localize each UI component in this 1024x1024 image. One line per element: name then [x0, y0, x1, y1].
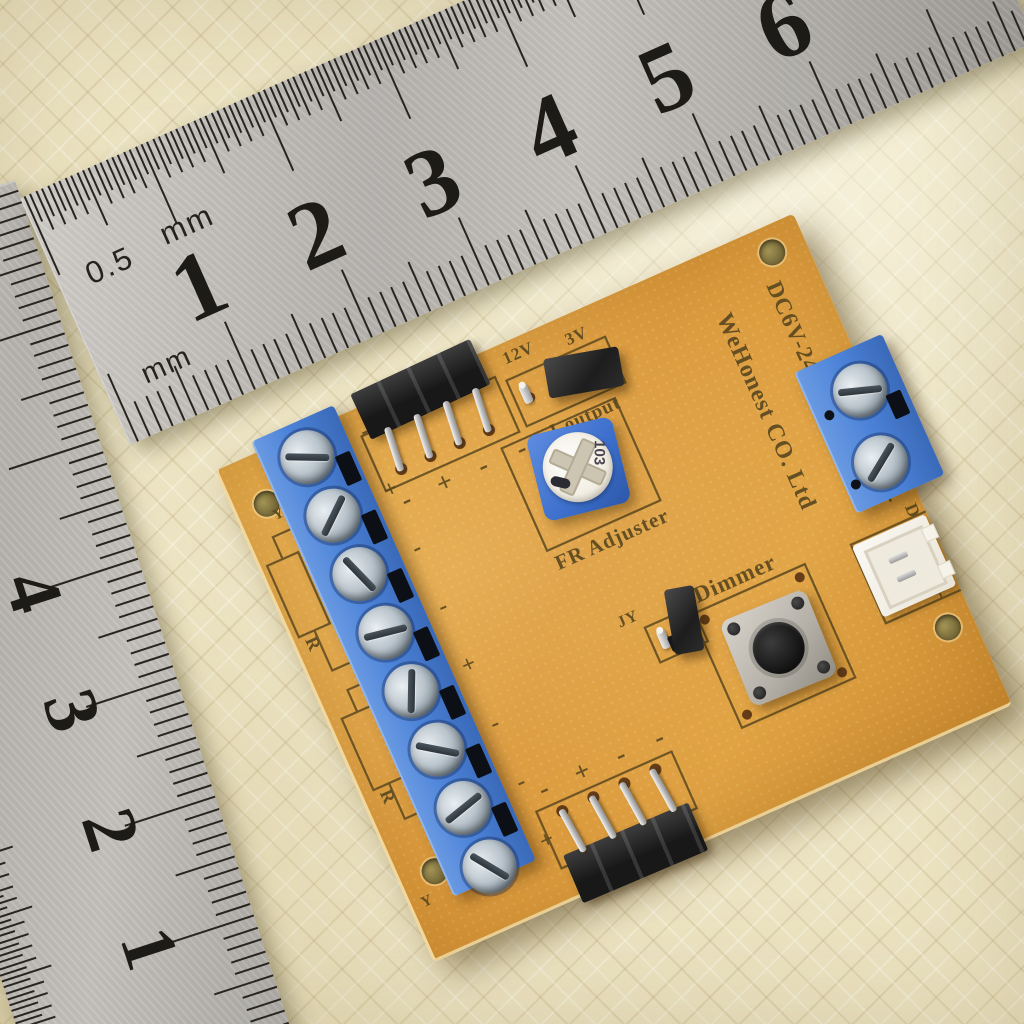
- screw-slot: [444, 791, 483, 824]
- ruler-tick: [613, 188, 630, 224]
- ruler-tick: [0, 213, 26, 226]
- ruler-tick: [88, 167, 102, 195]
- terminal-screw: [428, 772, 499, 843]
- ruler-tick: [310, 68, 324, 96]
- screw-slot: [363, 624, 407, 641]
- ruler-tick: [228, 105, 242, 133]
- terminal-pin-hole: [823, 409, 836, 422]
- ruler-tick: [61, 427, 96, 440]
- ruler-tick: [134, 653, 169, 666]
- ruler-tick: [127, 629, 162, 642]
- ruler-tick: [188, 819, 223, 832]
- ruler-tick: [601, 193, 618, 229]
- ruler-tick: [138, 665, 173, 678]
- top-ruler-number: 3: [388, 120, 477, 241]
- ruler-tick: [391, 287, 408, 323]
- ruler-tick: [150, 700, 185, 713]
- ruler-tick: [1010, 11, 1024, 47]
- ruler-tick: [449, 261, 466, 297]
- ruler-tick: [298, 74, 312, 102]
- ruler-tick: [0, 189, 18, 202]
- ruler-tick: [72, 463, 107, 476]
- ruler-tick: [917, 52, 934, 88]
- ruler-tick: [274, 339, 291, 375]
- ruler-tick: [193, 120, 207, 148]
- left-ruler-number: 4: [0, 560, 80, 623]
- ruler-tick: [524, 209, 548, 259]
- terminal-screw: [350, 597, 421, 668]
- ruler-tick: [858, 78, 875, 114]
- ruler-tick: [119, 605, 154, 618]
- ruler-tick: [177, 784, 212, 797]
- ruler-tick: [875, 53, 899, 103]
- ruler-tick: [199, 118, 225, 174]
- ruler-tick: [41, 188, 55, 216]
- ruler-tick: [608, 0, 645, 15]
- ruler-tick: [165, 748, 200, 761]
- ruler-tick: [800, 104, 817, 140]
- terminal-screw: [376, 655, 447, 726]
- ruler-tick: [847, 84, 864, 120]
- ruler-tick: [439, 11, 453, 39]
- top-ruler-lower-unit: mm: [136, 340, 197, 391]
- ruler-tick: [683, 156, 700, 192]
- ruler-tick: [57, 415, 92, 428]
- terminal-screw: [402, 714, 473, 785]
- ruler-tick: [519, 229, 536, 265]
- ruler-tick: [146, 141, 160, 169]
- ruler-tick: [145, 396, 162, 432]
- ruler-tick: [458, 217, 490, 285]
- ruler-tick: [0, 225, 30, 238]
- ruler-tick: [543, 219, 560, 255]
- ruler-tick: [975, 26, 992, 62]
- switch-corner-pin: [815, 659, 832, 676]
- ruler-tick: [692, 113, 724, 181]
- ruler-tick: [379, 292, 396, 328]
- top-ruler-number: 2: [271, 172, 360, 293]
- ruler-tick: [450, 6, 464, 34]
- ruler-tick: [208, 879, 243, 892]
- ruler-tick: [660, 167, 677, 203]
- ruler-tick: [99, 546, 134, 559]
- ruler-tick: [0, 237, 34, 250]
- ruler-tick: [231, 950, 266, 963]
- screw-slot: [321, 494, 347, 537]
- terminal-screw: [298, 480, 369, 551]
- ruler-tick: [812, 99, 829, 135]
- ruler-tick: [322, 63, 336, 91]
- ruler-tick: [34, 344, 69, 357]
- ruler-tick: [242, 986, 277, 999]
- ruler-tick: [380, 37, 394, 65]
- switch-corner-pin: [789, 595, 806, 612]
- ruler-tick: [215, 365, 232, 401]
- ruler-tick: [718, 141, 735, 177]
- ruler-tick: [135, 147, 149, 175]
- ruler-tick: [173, 772, 208, 785]
- ruler-tick: [437, 266, 454, 302]
- ruler-tick: [344, 307, 361, 343]
- ruler-tick: [49, 391, 84, 404]
- ruler-tick: [316, 66, 342, 122]
- ruler-tick: [758, 105, 782, 155]
- ruler-tick: [788, 110, 805, 146]
- ruler-tick: [157, 724, 192, 737]
- ruler-tick: [169, 760, 204, 773]
- screw-slot: [867, 442, 896, 483]
- ruler-tick: [38, 356, 73, 369]
- ruler-tick: [29, 193, 43, 221]
- ruler-tick: [227, 938, 262, 951]
- ruler-tick: [30, 332, 65, 345]
- ruler-tick: [170, 131, 184, 159]
- ruler-tick: [575, 165, 607, 233]
- screw-slot: [342, 556, 378, 593]
- screw-slot: [408, 669, 416, 713]
- ruler-tick: [309, 323, 326, 359]
- ruler-tick: [53, 403, 88, 416]
- ruler-tick: [158, 136, 172, 164]
- ruler-tick: [154, 712, 189, 725]
- ruler-tick: [566, 208, 583, 244]
- ruler-tick: [928, 47, 945, 83]
- ruler-tick: [369, 42, 383, 70]
- ruler-tick: [76, 173, 90, 201]
- ruler-tick: [392, 32, 406, 60]
- ruler-tick: [250, 1010, 285, 1023]
- ruler-tick: [196, 843, 231, 856]
- ruler-tick: [341, 269, 373, 337]
- ruler-tick: [905, 57, 922, 93]
- ruler-tick: [926, 9, 958, 77]
- switch-corner-pin: [725, 620, 742, 637]
- left-ruler-number: 3: [24, 679, 118, 742]
- ruler-tick: [291, 314, 315, 364]
- ruler-tick: [415, 22, 429, 50]
- ruler-tick: [192, 831, 227, 844]
- ruler-tick: [367, 297, 384, 333]
- ruler-tick: [624, 182, 641, 218]
- ruler-tick: [15, 284, 50, 297]
- ruler-tick: [130, 641, 165, 654]
- ruler-tick: [22, 308, 57, 321]
- ruler-tick: [695, 151, 712, 187]
- ruler-tick: [275, 84, 289, 112]
- ruler-tick: [992, 1, 1016, 51]
- ruler-tick: [212, 891, 247, 904]
- ruler-tick: [741, 130, 758, 166]
- ruler-tick: [250, 349, 267, 385]
- ruler-tick: [92, 522, 127, 535]
- ruler-tick: [427, 16, 441, 44]
- ruler-tick: [100, 162, 114, 190]
- ruler-tick: [76, 475, 111, 488]
- ruler-tick: [776, 115, 793, 151]
- screw-slot: [415, 742, 460, 757]
- ruler-tick: [0, 261, 42, 282]
- ruler-tick: [952, 37, 969, 73]
- ruler-tick: [168, 385, 185, 421]
- screw-slot: [469, 852, 510, 881]
- ruler-tick: [357, 48, 371, 76]
- ruler-tick: [333, 58, 347, 86]
- ruler-tick: [42, 368, 77, 381]
- ruler-tick: [184, 807, 219, 820]
- ruler-tick: [204, 867, 239, 880]
- terminal-screw: [824, 355, 895, 426]
- ruler-tick: [205, 115, 219, 143]
- ruler-tick: [870, 73, 887, 109]
- ruler-tick: [224, 321, 256, 389]
- top-ruler-number: 5: [622, 16, 711, 137]
- ruler-tick: [835, 89, 852, 125]
- ruler-tick: [88, 510, 123, 523]
- ruler-tick: [508, 234, 525, 270]
- ruler-tick: [671, 162, 688, 198]
- pot-value-marking: 103: [590, 440, 607, 465]
- ruler-tick: [484, 245, 501, 281]
- ruler-tick: [133, 401, 150, 437]
- screw-slot: [285, 453, 329, 461]
- ruler-tick: [11, 272, 46, 285]
- ruler-tick: [641, 157, 665, 207]
- ruler-tick: [554, 214, 571, 250]
- ruler-tick: [730, 136, 747, 172]
- ruler-tick: [964, 31, 981, 67]
- switch-button: [745, 614, 813, 682]
- ruler-tick: [496, 240, 513, 276]
- switch-corner-pin: [751, 684, 768, 701]
- ruler-tick: [69, 451, 104, 464]
- ruler-tick: [246, 998, 281, 1011]
- ruler-tick: [215, 903, 250, 916]
- ruler-tick: [227, 359, 244, 395]
- ruler-tick: [157, 391, 174, 427]
- ruler-tick: [115, 593, 150, 606]
- ruler-tick: [3, 249, 38, 262]
- left-ruler-number: 1: [102, 917, 196, 980]
- ruler-tick: [252, 94, 266, 122]
- ruler-tick: [461, 255, 478, 291]
- ruler-tick: [433, 14, 459, 70]
- top-ruler-number: 4: [505, 68, 594, 189]
- screw-slot: [838, 385, 882, 397]
- ruler-tick: [111, 582, 146, 595]
- ruler-tick: [987, 21, 1004, 57]
- ruler-tick: [80, 486, 115, 499]
- terminal-screw: [324, 539, 395, 610]
- ruler-tick: [636, 177, 653, 213]
- ruler-tick: [107, 570, 142, 583]
- ruler-tick: [223, 926, 258, 939]
- ruler-tick: [402, 281, 419, 317]
- ruler-tick: [407, 262, 431, 312]
- ruler-tick: [18, 296, 53, 309]
- ruler-tick: [107, 373, 139, 441]
- ruler-tick: [320, 318, 337, 354]
- ruler-tick: [893, 63, 910, 99]
- ruler-tick: [426, 271, 443, 307]
- ruler-tick: [263, 89, 277, 117]
- left-ruler-number: 2: [63, 798, 157, 861]
- ruler-tick: [96, 534, 131, 547]
- photo-scene: 123456 0.5 mm mm 4321 0.5 mm: [0, 0, 1024, 1024]
- ruler-tick: [809, 61, 841, 129]
- ruler-tick: [217, 110, 231, 138]
- left-ruler-mm-scale: [0, 182, 16, 262]
- ruler-tick: [262, 344, 279, 380]
- ruler-tick: [192, 375, 209, 411]
- top-ruler-unit-small: 0.5: [80, 239, 140, 292]
- ruler-tick: [146, 689, 181, 702]
- ruler-tick: [332, 313, 349, 349]
- ruler-tick: [203, 370, 220, 406]
- ruler-tick: [578, 203, 595, 239]
- ruler-tick: [285, 333, 302, 369]
- ruler-tick: [235, 962, 270, 975]
- ruler-tick: [9, 439, 100, 470]
- ruler-tick: [82, 170, 108, 226]
- wire-slot: [885, 389, 910, 419]
- terminal-screw: [272, 422, 343, 493]
- ruler-tick: [753, 125, 770, 161]
